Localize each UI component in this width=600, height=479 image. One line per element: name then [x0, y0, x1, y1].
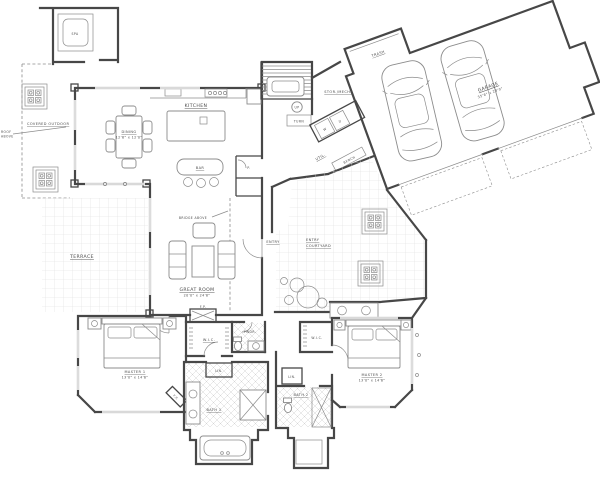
washer-label: W — [323, 127, 328, 132]
great-room-label: GREAT ROOM — [179, 287, 214, 293]
tub-bay — [200, 436, 250, 460]
terrace-area: TERRACE — [42, 198, 148, 312]
covered-outdoor-label: COVERED OUTDOOR — [27, 122, 69, 126]
bridge-above-label: BRIDGE ABOVE — [179, 216, 207, 220]
toilet-icon — [284, 403, 291, 412]
linen-closet: LIN. — [282, 368, 302, 384]
pwdr-label: PWDR. — [244, 330, 256, 334]
fire-feature-icon — [22, 84, 47, 109]
bed-icon — [104, 324, 160, 368]
bar-stool-icon — [197, 179, 206, 188]
turn-label: TURN — [293, 120, 305, 124]
master2-dims: 13'0" x 14'6" — [359, 379, 386, 383]
fireplace-label: F.P. — [200, 305, 206, 309]
entry-courtyard-label-2: COURTYARD — [306, 244, 331, 248]
trash-label: TRASH — [370, 50, 385, 59]
covered-outdoor-area: COVERED OUTDOOR ROOF ABOVE — [1, 64, 70, 198]
great-room-area: BRIDGE ABOVE GREAT ROOM 20'0" x 24'8" F.… — [169, 198, 235, 322]
kitchen-label: KITCHEN — [185, 103, 208, 109]
dining-area: DINING 12'6" x 12'0" — [106, 106, 152, 168]
bath2-label: BATH 2 — [293, 393, 308, 397]
bathtub-icon — [200, 436, 250, 460]
lin2-label: LIN. — [288, 375, 296, 379]
nightstand-icon — [88, 318, 101, 329]
powder-room-area: PWDR. — [232, 322, 265, 352]
wic1-label: W.I.C. — [203, 338, 215, 342]
sink-icon — [165, 89, 181, 96]
nightstand-icon — [163, 318, 176, 329]
entry-courtyard-area: ENTRY ENTRY COURTYARD — [243, 156, 426, 312]
sofa-icon — [169, 241, 186, 279]
sofa-icon — [218, 241, 235, 279]
up-label: UP — [295, 106, 300, 110]
shower-icon — [296, 440, 322, 464]
entry-door-icon — [243, 239, 262, 258]
dining-dims: 12'6" x 12'0" — [116, 136, 143, 140]
wic2-area: W.I.C. — [300, 318, 332, 352]
entry-courtyard-label-1: ENTRY — [306, 238, 320, 242]
loveseat-icon — [193, 223, 215, 238]
spa-area: SPA — [40, 8, 118, 64]
dryer-label: D — [338, 119, 343, 124]
bar-stool-icon — [184, 178, 193, 187]
terrace-label: TERRACE — [69, 254, 94, 260]
toilet-icon — [234, 341, 241, 350]
bar-area: BAR — [177, 159, 223, 188]
great-room-dims: 20'0" x 24'8" — [184, 294, 211, 298]
car-icon — [377, 58, 446, 164]
kitchen-island-icon — [167, 111, 225, 141]
roof-note-line1: ROOF — [1, 130, 11, 134]
bar-stool-icon — [210, 178, 219, 187]
nightstand-icon — [334, 320, 345, 330]
kitchen-area: KITCHEN — [150, 88, 261, 141]
wic2-label: W.I.C. — [311, 336, 322, 340]
master1-label: MASTER 1 — [125, 370, 146, 374]
vanity-icon — [330, 303, 378, 318]
bath1-area: LIN. BATH 1 — [184, 362, 268, 464]
roof-note-line2: ABOVE — [1, 135, 14, 139]
lin1-label: LIN. — [215, 369, 223, 373]
bed-icon — [348, 326, 400, 368]
nightstand-icon — [401, 320, 411, 330]
bar-label: BAR — [196, 166, 205, 170]
hall-bath2-area: LIN. BATH 2 — [276, 352, 334, 468]
bath2-vanity — [330, 303, 378, 318]
floor-plan-canvas: SPA COVERED OUTDOOR ROOF ABOVE TERRACE — [0, 0, 600, 479]
master2-label: MASTER 2 — [362, 373, 383, 377]
fire-feature-icon — [33, 167, 58, 192]
bath1-label: BATH 1 — [206, 408, 221, 412]
dining-label: DINING — [121, 130, 136, 134]
stor-mech-label: STOR./MECH. — [324, 90, 351, 94]
coffee-table-icon — [192, 246, 214, 277]
pantry-area: P. — [236, 156, 262, 196]
spa-label: SPA — [72, 32, 79, 36]
master1-dims: 13'0" x 14'6" — [122, 376, 149, 380]
pantry-label: P. — [247, 166, 250, 170]
master1-area: MASTER 1 13'0" x 14'6" F.P. — [78, 316, 187, 412]
stairs: UP TURN — [261, 62, 312, 126]
util-label: UTIL. — [315, 153, 326, 162]
entry-label: ENTRY — [266, 240, 280, 244]
floor-plan-drawing: SPA COVERED OUTDOOR ROOF ABOVE TERRACE — [0, 0, 600, 479]
fridge-icon — [247, 89, 261, 104]
